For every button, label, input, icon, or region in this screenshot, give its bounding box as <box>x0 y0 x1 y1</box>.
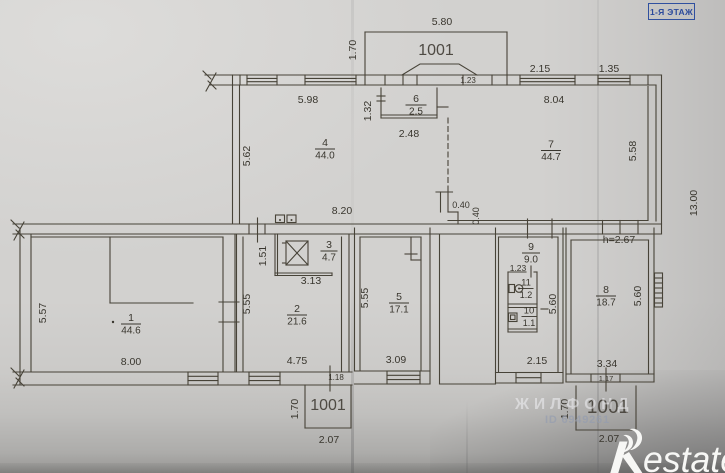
svg-text:4.75: 4.75 <box>287 355 308 367</box>
svg-text:8.04: 8.04 <box>544 94 565 106</box>
svg-text:1.70: 1.70 <box>559 399 571 420</box>
svg-text:1.23: 1.23 <box>460 76 476 85</box>
svg-text:8.00: 8.00 <box>121 356 142 368</box>
svg-text:4: 4 <box>322 137 328 149</box>
svg-text:2.15: 2.15 <box>527 355 548 367</box>
svg-text:5.62: 5.62 <box>241 146 253 167</box>
svg-text:1.51: 1.51 <box>257 246 269 267</box>
svg-text:9: 9 <box>528 241 534 253</box>
svg-text:5.55: 5.55 <box>241 294 253 315</box>
svg-text:2.15: 2.15 <box>530 63 551 75</box>
svg-text:1.1: 1.1 <box>523 318 536 328</box>
svg-text:1.17: 1.17 <box>599 374 614 383</box>
svg-text:44.0: 44.0 <box>315 151 335 162</box>
svg-text:0.40: 0.40 <box>452 200 470 210</box>
svg-text:5.80: 5.80 <box>432 16 453 28</box>
svg-text:3.34: 3.34 <box>597 358 618 370</box>
svg-text:0.40: 0.40 <box>471 207 481 225</box>
svg-text:9.0: 9.0 <box>524 255 538 266</box>
svg-text:3.09: 3.09 <box>386 354 407 366</box>
svg-text:1.70: 1.70 <box>347 40 359 61</box>
svg-text:5.55: 5.55 <box>359 288 371 309</box>
svg-text:6: 6 <box>413 93 419 105</box>
svg-text:11: 11 <box>521 278 531 289</box>
svg-text:2: 2 <box>294 303 300 315</box>
svg-text:1.32: 1.32 <box>362 101 374 122</box>
svg-text:1001: 1001 <box>418 42 454 59</box>
svg-text:8.20: 8.20 <box>332 205 353 217</box>
svg-text:2.48: 2.48 <box>399 128 420 140</box>
svg-text:21.6: 21.6 <box>287 317 307 328</box>
svg-text:3.13: 3.13 <box>301 275 322 287</box>
svg-text:17.1: 17.1 <box>389 305 409 316</box>
svg-text:1.70: 1.70 <box>289 399 301 420</box>
svg-text:10: 10 <box>524 306 535 317</box>
svg-text:1001: 1001 <box>310 397 346 414</box>
svg-text:estate: estate <box>643 439 725 473</box>
svg-text:3: 3 <box>326 239 332 251</box>
svg-text:44.6: 44.6 <box>121 326 141 337</box>
svg-text:5.60: 5.60 <box>632 286 644 307</box>
svg-text:h=2.67: h=2.67 <box>603 234 636 246</box>
svg-text:18.7: 18.7 <box>596 298 616 309</box>
svg-text:2.07: 2.07 <box>319 434 340 446</box>
svg-text:1.2: 1.2 <box>520 290 533 300</box>
svg-text:8: 8 <box>603 284 609 296</box>
svg-text:5: 5 <box>396 291 402 303</box>
svg-text:5.57: 5.57 <box>37 303 49 324</box>
svg-text:1: 1 <box>128 312 134 324</box>
svg-text:7: 7 <box>548 139 554 151</box>
svg-text:13.00: 13.00 <box>688 190 700 216</box>
svg-text:5.98: 5.98 <box>298 94 319 106</box>
svg-text:44.7: 44.7 <box>541 152 561 163</box>
svg-text:5.60: 5.60 <box>547 294 559 315</box>
svg-text:2.5: 2.5 <box>409 107 423 118</box>
svg-text:5.58: 5.58 <box>627 141 639 162</box>
svg-text:4.7: 4.7 <box>322 253 336 264</box>
svg-text:1.18: 1.18 <box>328 373 344 382</box>
svg-text:1.35: 1.35 <box>599 63 620 75</box>
svg-text:1001: 1001 <box>587 397 629 418</box>
